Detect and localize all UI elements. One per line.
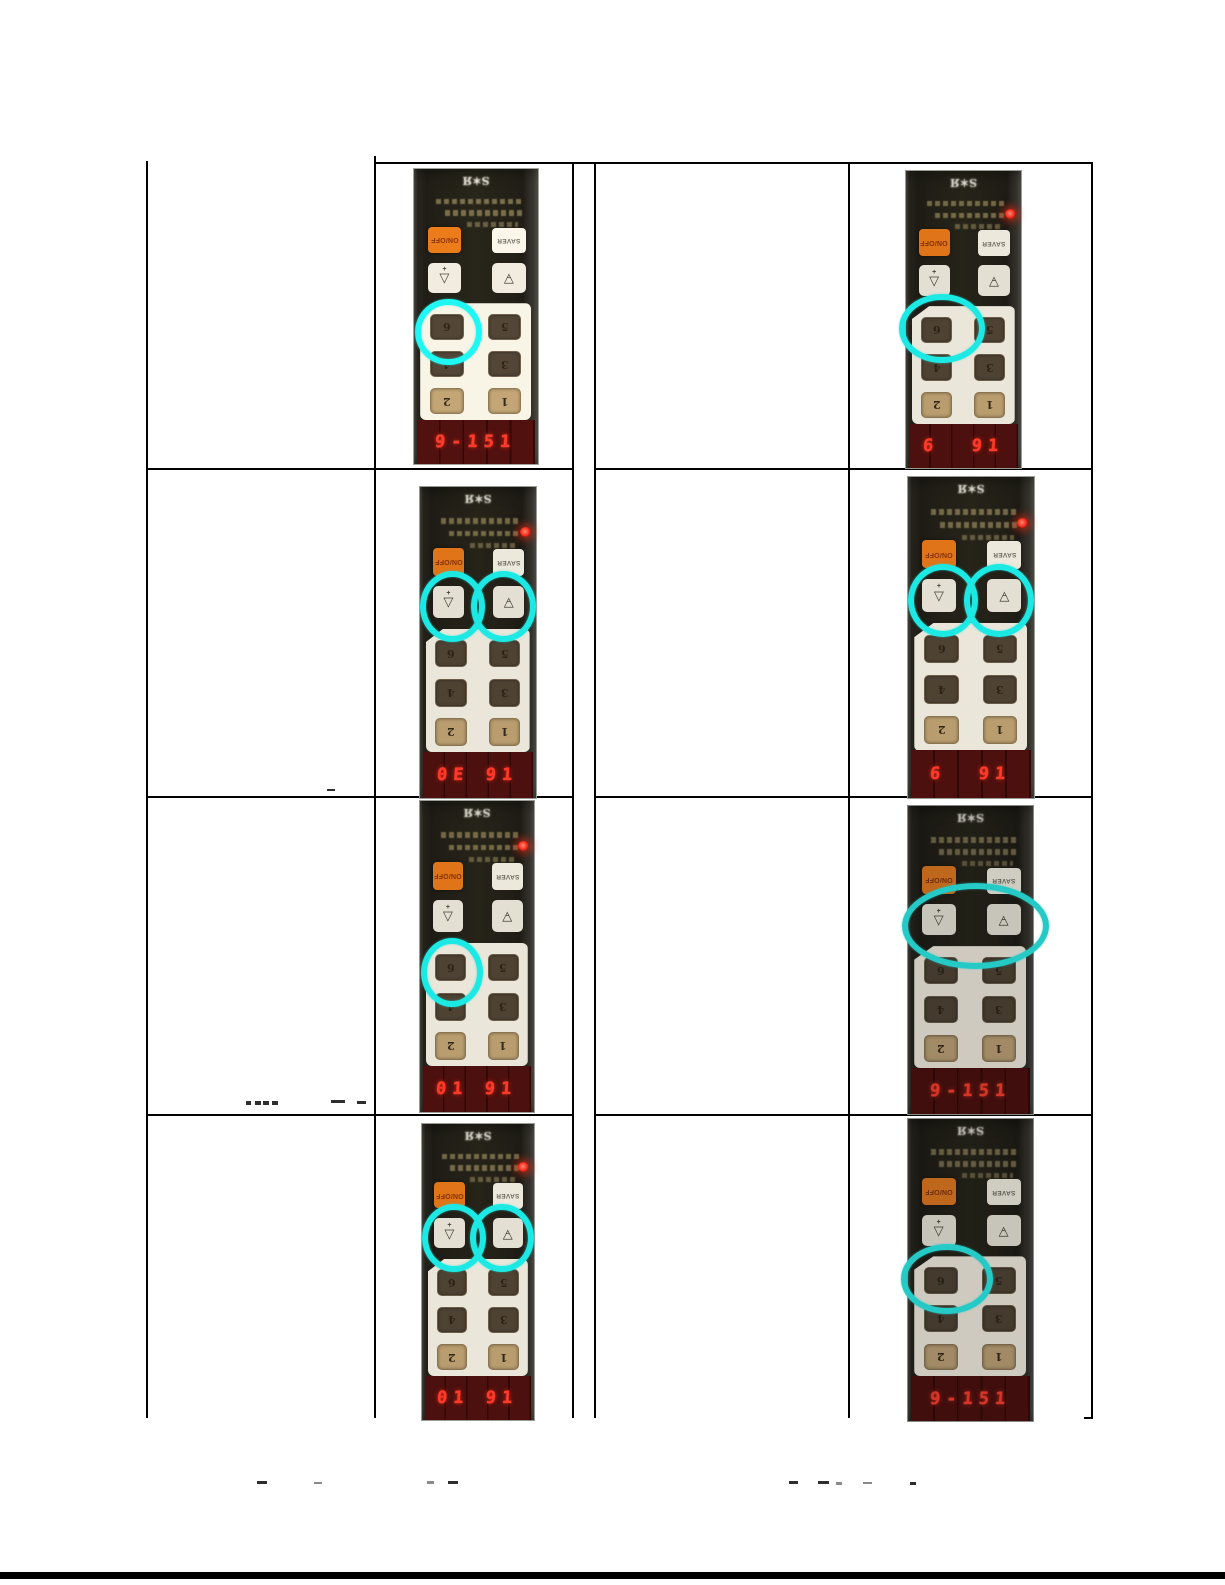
up-arrow-button: △ − [987, 1215, 1021, 1246]
status-led-icon [520, 527, 531, 537]
remote-control-panel: S✶Я ON/OFF SAVER ▽ + △ − 6 5 4 3 2 1 [905, 170, 1022, 469]
photo-row4-right: S✶Я ON/OFF SAVER ▽ + △ − 6 5 4 3 2 1 [907, 1118, 1032, 1420]
on-off-button: ON/OFF [919, 229, 950, 256]
panel-print-line [939, 849, 1017, 855]
text-fragment [863, 1482, 872, 1484]
down-arrow-button: ▽ + [428, 263, 461, 293]
text-fragment [818, 1481, 829, 1484]
panel-print-line [469, 857, 516, 862]
key-label: 2 [448, 1351, 456, 1364]
on-off-label: ON/OFF [925, 551, 953, 558]
panel-print-line [931, 837, 1017, 843]
key-button-1: 1 [982, 1344, 1016, 1371]
saver-label: SAVER [993, 551, 1016, 558]
highlight-ring [902, 883, 1049, 969]
text-fragment [314, 1482, 322, 1484]
down-arrow-icon: ▽ [443, 909, 453, 922]
text-fragment [257, 1481, 267, 1484]
plus-mark: + [922, 1219, 956, 1226]
key-label: 5 [500, 1276, 508, 1289]
page-bottom-bar [0, 1572, 1225, 1579]
key-label: 1 [995, 1042, 1003, 1055]
on-off-label: ON/OFF [435, 558, 463, 565]
key-label: 1 [500, 1351, 508, 1364]
brand-logo-icon: S✶Я [908, 482, 1034, 495]
table-corner-foot [1084, 1417, 1093, 1419]
led-display: 9-151 [911, 1376, 1030, 1421]
key-label: 5 [501, 647, 509, 660]
key-button-3: 3 [983, 675, 1017, 704]
remote-control-panel: S✶Я ON/OFF SAVER ▽ + △ − 6 5 4 3 2 1 [421, 1123, 535, 1421]
key-label: 5 [501, 320, 509, 333]
saver-button: SAVER [492, 863, 523, 890]
photo-row2-right: S✶Я ON/OFF SAVER ▽ + △ − 6 5 4 3 2 1 [907, 476, 1033, 797]
panel-print-line [927, 201, 1006, 207]
on-off-label: ON/OFF [925, 876, 953, 883]
saver-label: SAVER [982, 240, 1005, 247]
saver-button: SAVER [978, 230, 1009, 256]
keypad-grid: 6 5 4 3 2 1 [924, 635, 1017, 745]
brand-logo-icon: S✶Я [422, 1129, 534, 1142]
key-label: 2 [447, 725, 455, 738]
photo-row2-left: S✶Я ON/OFF SAVER ▽ + △ − 6 5 4 3 2 1 [419, 486, 535, 797]
text-fragment [448, 1481, 458, 1484]
on-off-button: ON/OFF [433, 862, 464, 890]
table-row-divider-3a [146, 1114, 574, 1116]
highlight-ring [415, 299, 482, 366]
key-button-2: 2 [921, 392, 952, 418]
status-led-icon [1017, 518, 1028, 528]
key-label: 4 [448, 1313, 456, 1326]
on-off-button: ON/OFF [428, 227, 461, 254]
panel-print-line [935, 213, 1006, 219]
on-off-label: ON/OFF [436, 1192, 464, 1199]
table-border-col2 [374, 156, 376, 1418]
on-off-label: ON/OFF [925, 1188, 953, 1195]
table-border-right [1091, 162, 1093, 1419]
key-label: 2 [443, 395, 451, 408]
highlight-ring [470, 1204, 534, 1272]
saver-button: SAVER [492, 228, 525, 253]
on-off-label: ON/OFF [920, 239, 948, 246]
key-label: 5 [499, 961, 507, 974]
up-arrow-button: △ − [492, 263, 525, 293]
status-led-icon [518, 841, 529, 851]
led-display-digits: 6 91 [930, 764, 1013, 784]
photo-row3-right: S✶Я ON/OFF SAVER ▽ + △ − 6 5 4 3 2 1 [907, 805, 1032, 1113]
panel-print-line [955, 224, 1002, 228]
text-fragment [910, 1482, 916, 1485]
plus-mark: + [428, 266, 461, 273]
status-led-icon [518, 1162, 529, 1172]
status-led-icon [1005, 209, 1016, 219]
key-button-6: 6 [435, 640, 467, 668]
key-label: 1 [499, 1039, 507, 1052]
text-fragment [331, 1100, 345, 1103]
led-display-digits: 01 91 [436, 1079, 519, 1099]
led-display: 0E 91 [423, 752, 533, 798]
key-label: 1 [995, 1350, 1003, 1363]
key-label: 1 [501, 725, 509, 738]
panel-print-line [940, 522, 1018, 528]
led-display: 9-151 [417, 420, 535, 464]
photo-row1-left: S✶Я ON/OFF SAVER ▽ + △ − 6 5 4 3 2 1 [413, 168, 537, 463]
panel-print-line [449, 531, 521, 537]
led-display: 6 91 [911, 750, 1031, 798]
text-fragment [789, 1481, 798, 1484]
key-button-5: 5 [488, 954, 519, 982]
text-fragment [246, 1101, 251, 1105]
key-label: 5 [986, 323, 994, 336]
key-label: 2 [447, 1039, 455, 1052]
remote-control-panel: S✶Я ON/OFF SAVER ▽ + △ − 6 5 4 3 2 1 [419, 800, 535, 1113]
photo-row3-left: S✶Я ON/OFF SAVER ▽ + △ − 6 5 4 3 2 1 [419, 800, 533, 1111]
remote-control-panel: S✶Я ON/OFF SAVER ▽ + △ − 6 5 4 3 2 1 [419, 486, 537, 799]
key-button-4: 4 [924, 996, 958, 1023]
table-row-divider-1a [146, 468, 574, 470]
remote-control-panel: S✶Я ON/OFF SAVER ▽ + △ − 6 5 4 3 2 1 [413, 168, 539, 465]
key-label: 3 [499, 1000, 507, 1013]
up-arrow-button: △ − [492, 900, 523, 932]
panel-print-line [450, 1165, 519, 1171]
remote-control-panel: S✶Я ON/OFF SAVER ▽ + △ − 6 5 4 3 2 1 [907, 476, 1035, 799]
key-button-3: 3 [488, 993, 519, 1021]
down-arrow-button: ▽ + [919, 265, 950, 295]
brand-logo-icon: S✶Я [420, 492, 536, 505]
key-button-1: 1 [488, 388, 522, 414]
key-button-5: 5 [488, 1269, 518, 1295]
key-button-2: 2 [435, 718, 467, 746]
key-button-6: 6 [437, 1269, 467, 1295]
key-button-4: 4 [435, 679, 467, 707]
table-border-col4 [594, 162, 596, 1418]
key-label: 3 [501, 358, 509, 371]
saver-label: SAVER [497, 237, 520, 244]
minus-mark: − [987, 1228, 1021, 1235]
text-fragment [357, 1101, 366, 1104]
highlight-ring [471, 571, 536, 642]
brand-logo-icon: S✶Я [420, 806, 534, 819]
key-label: 4 [447, 686, 455, 699]
remote-control-panel: S✶Я ON/OFF SAVER ▽ + △ − 6 5 4 3 2 1 [907, 1118, 1034, 1422]
panel-print-line [436, 199, 522, 205]
key-button-2: 2 [430, 388, 464, 414]
highlight-ring [901, 1244, 993, 1313]
led-display-digits: 9-151 [929, 1081, 1012, 1101]
key-button-2: 2 [435, 1032, 466, 1060]
text-fragment [272, 1101, 278, 1105]
down-arrow-icon: ▽ [934, 1224, 944, 1237]
key-label: 6 [447, 647, 455, 660]
key-button-1: 1 [982, 1035, 1016, 1062]
key-button-5: 5 [489, 640, 521, 668]
panel-print-line [470, 1177, 516, 1181]
key-button-3: 3 [488, 351, 522, 377]
key-button-5: 5 [488, 314, 522, 340]
brand-logo-icon: S✶Я [908, 1124, 1033, 1137]
key-button-1: 1 [983, 716, 1017, 745]
key-label: 1 [986, 398, 994, 411]
key-label: 4 [933, 361, 941, 374]
saver-label: SAVER [496, 1192, 519, 1199]
keypad-grid: 6 5 4 3 2 1 [437, 1269, 519, 1370]
led-display: 01 91 [423, 1066, 531, 1112]
key-button-4: 4 [924, 675, 958, 704]
panel-print-line [441, 518, 521, 524]
key-label: 1 [501, 395, 509, 408]
keypad-panel: 6 5 4 3 2 1 [426, 629, 530, 752]
key-label: 5 [996, 642, 1004, 655]
key-button-3: 3 [982, 1305, 1016, 1332]
highlight-ring [899, 294, 985, 362]
panel-print-line [962, 1173, 1013, 1178]
led-display-digits: 9-151 [929, 1389, 1012, 1409]
panel-print-line [931, 509, 1018, 515]
key-label: 3 [995, 1312, 1003, 1325]
up-arrow-button: △ − [978, 265, 1009, 295]
key-label: 4 [937, 1003, 945, 1016]
key-button-4: 4 [437, 1307, 467, 1333]
on-off-label: ON/OFF [434, 872, 462, 879]
key-label: 4 [937, 1312, 945, 1325]
key-button-1: 1 [974, 392, 1005, 418]
key-label: 6 [448, 1276, 456, 1289]
panel-print-line [962, 535, 1014, 540]
key-label: 3 [995, 1003, 1003, 1016]
panel-print-line [467, 222, 518, 226]
minus-mark: − [492, 275, 525, 282]
panel-print-line [442, 1154, 519, 1160]
on-off-button: ON/OFF [922, 1178, 956, 1205]
minus-mark: − [492, 913, 523, 920]
key-button-3: 3 [489, 679, 521, 707]
key-button-2: 2 [924, 716, 958, 745]
panel-print-line [445, 210, 522, 216]
table-border-col5 [848, 162, 850, 1418]
panel-print-line [962, 861, 1013, 866]
text-fragment [255, 1101, 261, 1105]
key-label: 2 [937, 1350, 945, 1363]
panel-print-line [939, 1161, 1017, 1167]
saver-label: SAVER [496, 873, 519, 880]
keypad-panel: 6 5 4 3 2 1 [914, 623, 1027, 750]
text-fragment [327, 789, 335, 791]
key-button-1: 1 [488, 1344, 518, 1370]
saver-label: SAVER [497, 559, 520, 566]
table-border-top [374, 162, 1093, 164]
led-display: 6 91 [909, 424, 1018, 468]
panel-print-line [470, 543, 518, 548]
plus-mark: + [433, 904, 464, 911]
minus-mark: − [978, 278, 1009, 285]
key-label: 3 [500, 1313, 508, 1326]
saver-button: SAVER [987, 1179, 1021, 1205]
key-label: 3 [501, 686, 509, 699]
on-off-label: ON/OFF [431, 236, 459, 243]
key-label: 3 [986, 361, 994, 374]
table-border-col3 [572, 162, 574, 1418]
key-button-6: 6 [924, 635, 958, 664]
key-button-3: 3 [982, 996, 1016, 1023]
key-button-2: 2 [437, 1344, 467, 1370]
keypad-grid: 6 5 4 3 2 1 [924, 957, 1016, 1062]
led-display-digits: 6 91 [922, 436, 1005, 456]
saver-label: SAVER [992, 1189, 1015, 1196]
key-label: 6 [937, 964, 945, 977]
brand-logo-icon: S✶Я [908, 811, 1033, 824]
led-display: 9-151 [911, 1068, 1030, 1114]
keypad-grid: 6 5 4 3 2 1 [435, 640, 520, 746]
key-button-3: 3 [488, 1307, 518, 1333]
led-display: 01 91 [425, 1376, 531, 1420]
panel-print-line [449, 845, 520, 851]
panel-print-line [931, 1149, 1017, 1155]
down-arrow-button: ▽ + [922, 1215, 956, 1246]
table-border-left [146, 161, 148, 1418]
text-fragment [263, 1101, 269, 1105]
key-button-1: 1 [488, 1032, 519, 1060]
photo-row1-right: S✶Я ON/OFF SAVER ▽ + △ − 6 5 4 3 2 1 [905, 170, 1020, 467]
key-label: 2 [933, 398, 941, 411]
led-display-digits: 0E 91 [437, 765, 520, 785]
led-display-digits: 01 91 [437, 1388, 520, 1408]
key-label: 2 [938, 723, 946, 736]
led-display-digits: 9-151 [435, 432, 518, 452]
key-button-5: 5 [983, 635, 1017, 664]
highlight-ring [964, 564, 1034, 637]
down-arrow-button: ▽ + [433, 900, 464, 932]
brand-logo-icon: S✶Я [906, 176, 1021, 189]
key-button-3: 3 [974, 354, 1005, 380]
panel-print-line [441, 832, 520, 838]
keypad-panel: 6 5 4 3 2 1 [428, 1259, 528, 1377]
key-label: 5 [995, 1274, 1003, 1287]
key-button-1: 1 [489, 718, 521, 746]
text-fragment [836, 1482, 842, 1485]
key-label: 3 [996, 683, 1004, 696]
text-fragment [427, 1481, 434, 1484]
key-button-2: 2 [924, 1344, 958, 1371]
key-label: 4 [938, 683, 946, 696]
key-label: 6 [938, 642, 946, 655]
saver-label: SAVER [992, 877, 1015, 884]
brand-logo-icon: S✶Я [414, 174, 538, 187]
photo-row4-left: S✶Я ON/OFF SAVER ▽ + △ − 6 5 4 3 2 1 [421, 1123, 533, 1419]
remote-control-panel: S✶Я ON/OFF SAVER ▽ + △ − 6 5 4 3 2 1 [907, 805, 1034, 1115]
plus-mark: + [919, 269, 950, 276]
key-button-2: 2 [924, 1035, 958, 1062]
key-label: 2 [937, 1042, 945, 1055]
key-label: 1 [996, 723, 1004, 736]
